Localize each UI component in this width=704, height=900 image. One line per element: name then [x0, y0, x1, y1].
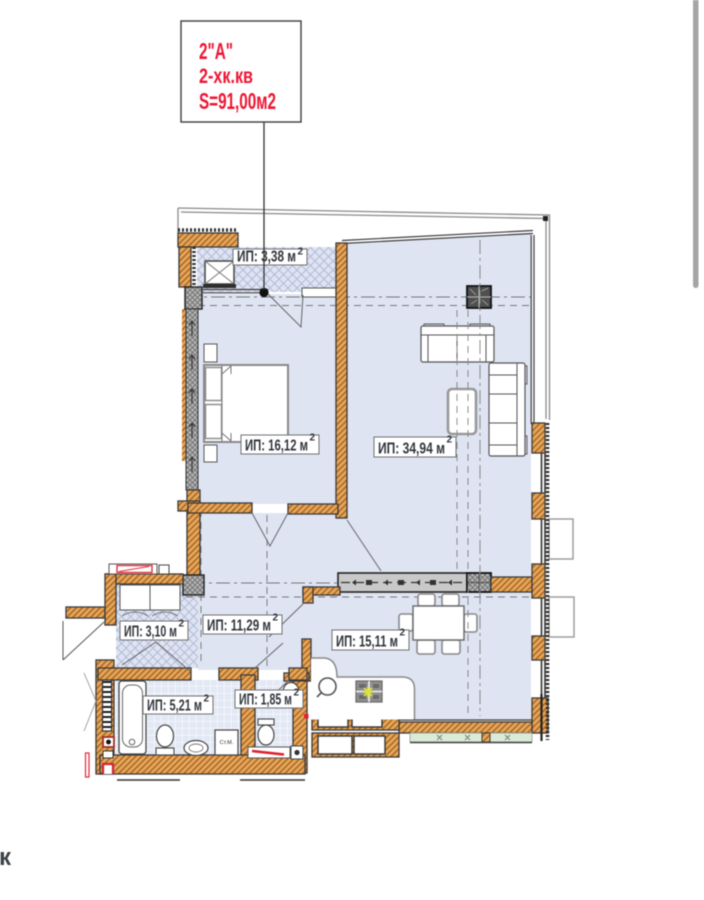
svg-text:ИП: 1,85 м: ИП: 1,85 м [239, 692, 292, 709]
svg-text:ИП: 3,38 м: ИП: 3,38 м [237, 249, 296, 266]
svg-text:ИП: 15,11 м: ИП: 15,11 м [336, 634, 398, 651]
svg-text:2: 2 [400, 628, 406, 639]
svg-text:Ст.М.: Ст.М. [220, 740, 234, 746]
svg-text:2: 2 [204, 694, 210, 705]
svg-text:2: 2 [447, 435, 453, 446]
svg-text:ИП: 34,94 м: ИП: 34,94 м [378, 441, 445, 458]
svg-text:2: 2 [273, 613, 279, 624]
svg-text:ИП: 11,29 м: ИП: 11,29 м [207, 618, 271, 635]
svg-text:к: к [0, 844, 12, 871]
svg-text:ИП: 5,21 м: ИП: 5,21 м [147, 698, 202, 715]
svg-text:2-хк.кв: 2-хк.кв [199, 64, 253, 88]
svg-text:2: 2 [179, 619, 185, 630]
svg-text:ИП: 16,12 м: ИП: 16,12 м [245, 438, 308, 455]
svg-text:2: 2 [310, 433, 316, 444]
svg-text:S=91,00м2: S=91,00м2 [199, 88, 276, 114]
svg-text:2: 2 [294, 688, 300, 699]
svg-text:ИП: 3,10 м: ИП: 3,10 м [124, 624, 177, 641]
svg-text:2: 2 [298, 247, 304, 258]
svg-text:2"А": 2"А" [199, 38, 233, 64]
